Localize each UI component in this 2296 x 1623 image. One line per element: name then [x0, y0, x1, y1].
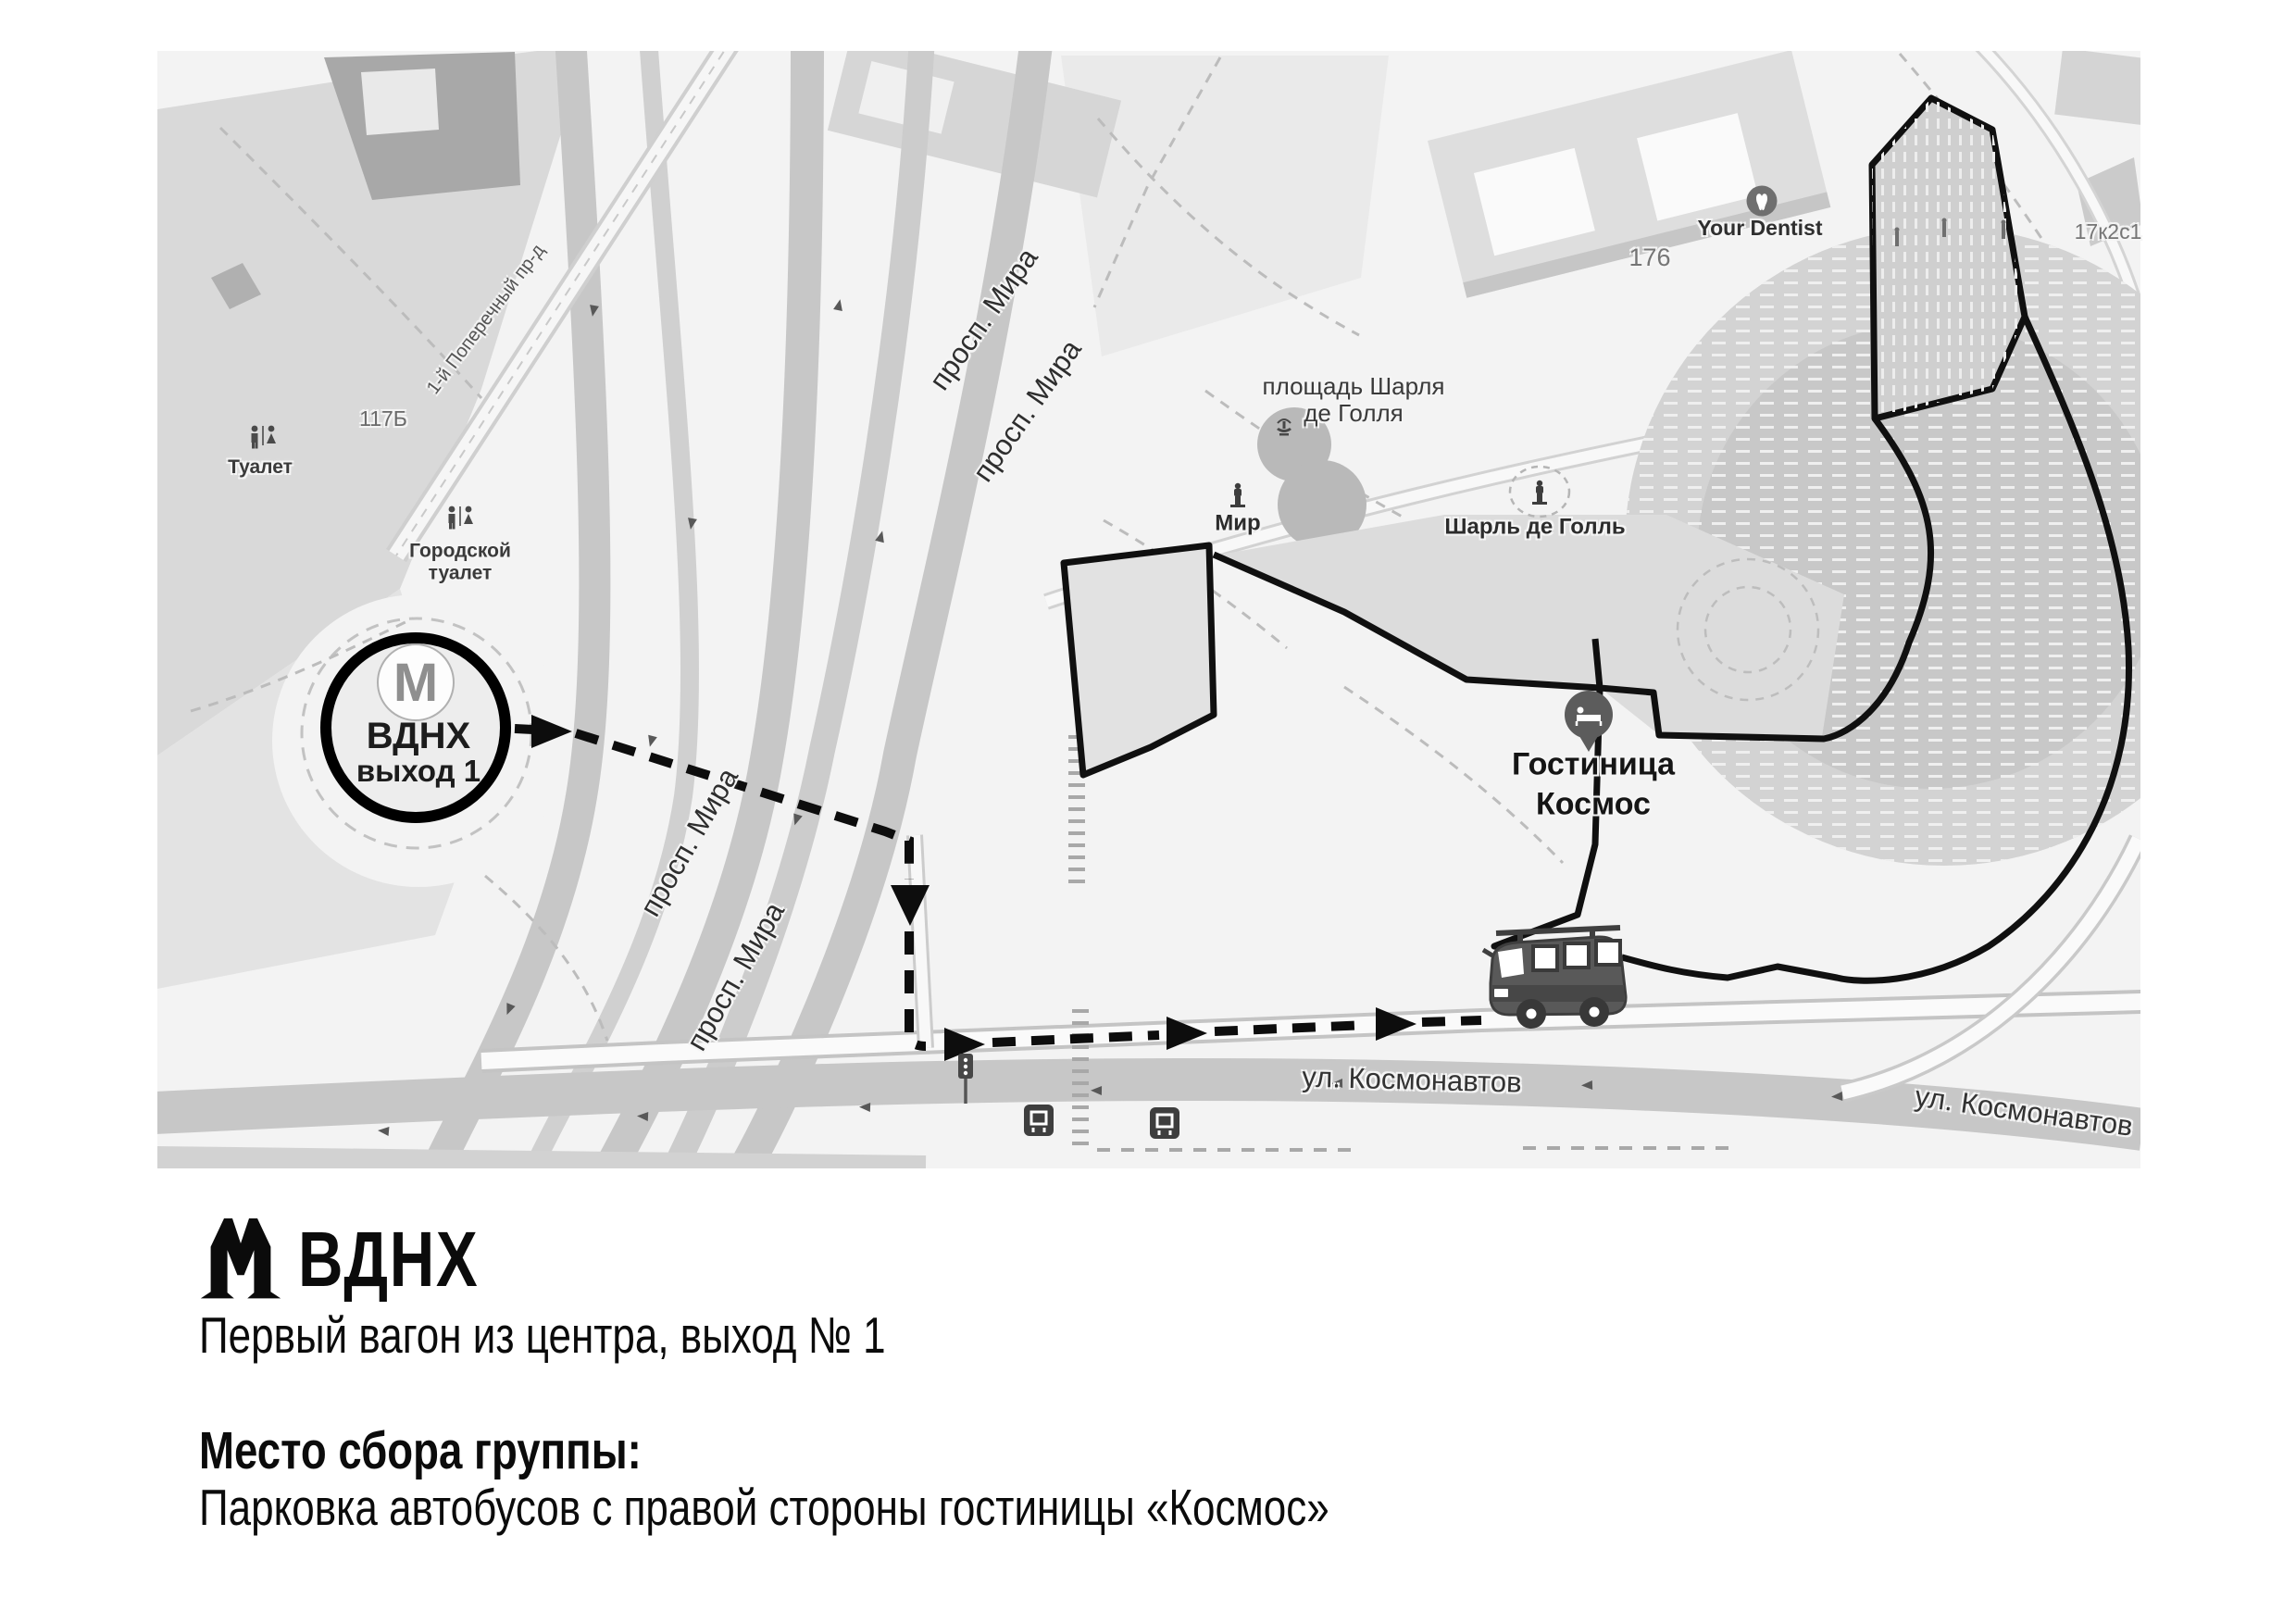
caption-meeting-label: Место сбора группы:	[199, 1420, 642, 1481]
label-hotel-kosmos: Гостиница Космос	[1512, 745, 1675, 824]
label-mir: Мир	[1215, 512, 1260, 537]
label-square-de-gaulle: площадь Шарля де Голля	[1263, 373, 1445, 427]
label-charles-de-gaulle: Шарль де Голль	[1444, 516, 1625, 541]
label-city-toilet-line1: Городской	[409, 540, 511, 561]
label-house-17k2s1: 17к2с1	[2075, 220, 2142, 244]
caption-station-title: ВДНХ	[298, 1215, 479, 1305]
map-canvas: М ВДНХ выход 1	[0, 0, 2296, 1618]
label-kosmonavtov: ул. Космонавтов	[1302, 1062, 1522, 1100]
label-square-line1: площадь Шарля	[1263, 372, 1445, 400]
metro-exit-label: выход 1	[356, 754, 480, 788]
metro-station-name: ВДНХ	[367, 716, 471, 756]
transit-stop-icon	[1150, 1107, 1179, 1139]
caption-metro-logo	[201, 1218, 281, 1298]
label-house-176: 176	[1628, 243, 1670, 271]
metro-m-letter: М	[393, 653, 438, 713]
label-toilet: Туалет	[228, 456, 293, 479]
label-city-toilet-line2: туалет	[429, 562, 493, 583]
building-courtyard	[361, 69, 439, 135]
label-hotel-line1: Гостиница	[1512, 747, 1675, 782]
caption-subtitle: Первый вагон из центра, выход № 1	[199, 1305, 886, 1365]
caption-meeting-value: Парковка автобусов с правой стороны гост…	[199, 1478, 1329, 1537]
building	[2054, 48, 2150, 125]
route-scheme: М ВДНХ выход 1 Туалет Городской туалет 1…	[0, 0, 2296, 1618]
label-your-dentist: Your Dentist	[1697, 217, 1822, 241]
label-hotel-line2: Космос	[1536, 786, 1651, 821]
label-house-117b: 117Б	[359, 407, 407, 431]
metro-station-badge: М ВДНХ выход 1	[326, 638, 505, 818]
tooth-icon	[1747, 186, 1778, 217]
label-city-toilet: Городской туалет	[409, 540, 511, 583]
label-square-line2: де Голля	[1304, 399, 1404, 427]
transit-stop-icon	[1024, 1105, 1054, 1136]
